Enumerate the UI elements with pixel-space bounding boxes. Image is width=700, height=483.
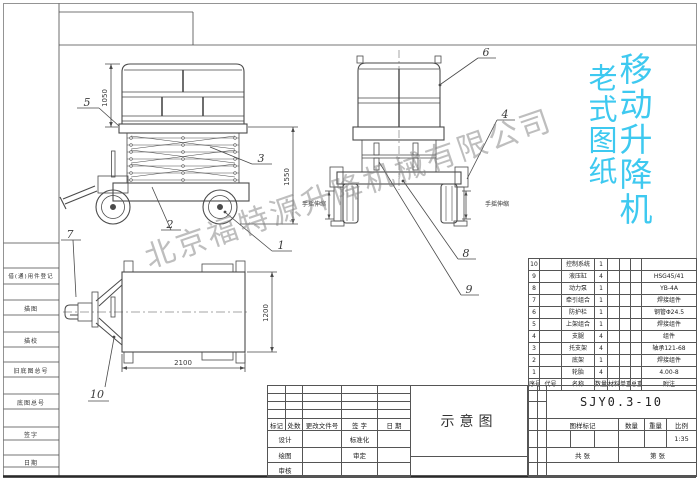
revision-block: 标记处数 更改文件号签 字 日 期 设计 标准化 绘图 审定 审核 [267,385,411,477]
table-row: 10控制系统1 [529,259,697,271]
balloon-10: 10 [90,388,104,401]
strip-label-date: 日期 [4,458,58,467]
top-view [63,261,250,363]
table-row: 9液压缸4HSG45/41 [529,271,697,283]
strip-label-old-base-no: 旧底图总号 [4,366,58,375]
stamp-title-text: 移动升降机 [617,52,650,227]
table-row: 1轮胎44.00-8 [529,367,697,379]
table-row: 5上架组合1焊接组件 [529,319,697,331]
model-number: SJY0.3-10 [547,386,697,419]
table-row: 2底架1焊接组件 [529,355,697,367]
strip-label-reuse-register: 借(通)用件登记 [4,272,58,280]
strip-label-tracing: 描图 [4,304,58,313]
table-row: 6防护栏1钢管Φ24.5 [529,307,697,319]
parts-table: 10控制系统1 9液压缸4HSG45/41 8动力泵1YB-4A 7牵引组合1焊… [528,258,697,391]
title-block: SJY0.3-10 图样标记 数量 重量 比例 1:35 共 张 第 张 [528,385,697,477]
table-row: 4支腿4组件 [529,331,697,343]
sign-row-design: 设计 标准化 [268,431,411,448]
company-watermark: 北京福特源升降机械有限公司 [138,96,558,277]
sign-row-check: 审核 [268,463,411,477]
revision-header-row: 标记处数 更改文件号签 字 日 期 [268,419,411,431]
balloon-6: 6 [483,46,490,59]
table-row: 7牵引组合1焊接组件 [529,295,697,307]
table-row: 8动力泵1YB-4A [529,283,697,295]
sheet-total: 共 张 [547,448,619,463]
drawing-name: 示意图 [411,386,527,457]
dim-top-depth: 1200 [262,304,270,322]
strip-label-signature: 签字 [4,430,58,439]
hand-crank-label-right: 手摇伸缩 [485,200,509,208]
balloon-5: 5 [84,96,91,109]
balloon-3: 3 [258,152,265,165]
balloon-8: 8 [463,247,470,260]
balloon-1: 1 [278,239,285,252]
front-view [60,64,249,224]
sign-row-draw: 绘图 审定 [268,448,411,463]
title-header-row: 图样标记 数量 重量 比例 [529,419,697,431]
dim-front-rail: 1050 [101,89,109,107]
strip-label-base-no: 底图总号 [4,398,58,407]
sheet-number: 第 张 [619,448,697,463]
stamp-subtitle-text: 老式图纸 [586,63,615,187]
drawing-page: 1050 1550 2100 1200 5 [0,0,700,483]
balloon-9: 9 [466,283,473,296]
dim-top-width: 2100 [174,359,192,367]
scale-value: 1:35 [667,431,697,448]
balloon-7: 7 [67,228,74,241]
strip-label-trace-check: 描校 [4,336,58,345]
drawing-name-block: 示意图 [410,385,528,476]
table-row: 3托支架4轴承121-68 [529,343,697,355]
